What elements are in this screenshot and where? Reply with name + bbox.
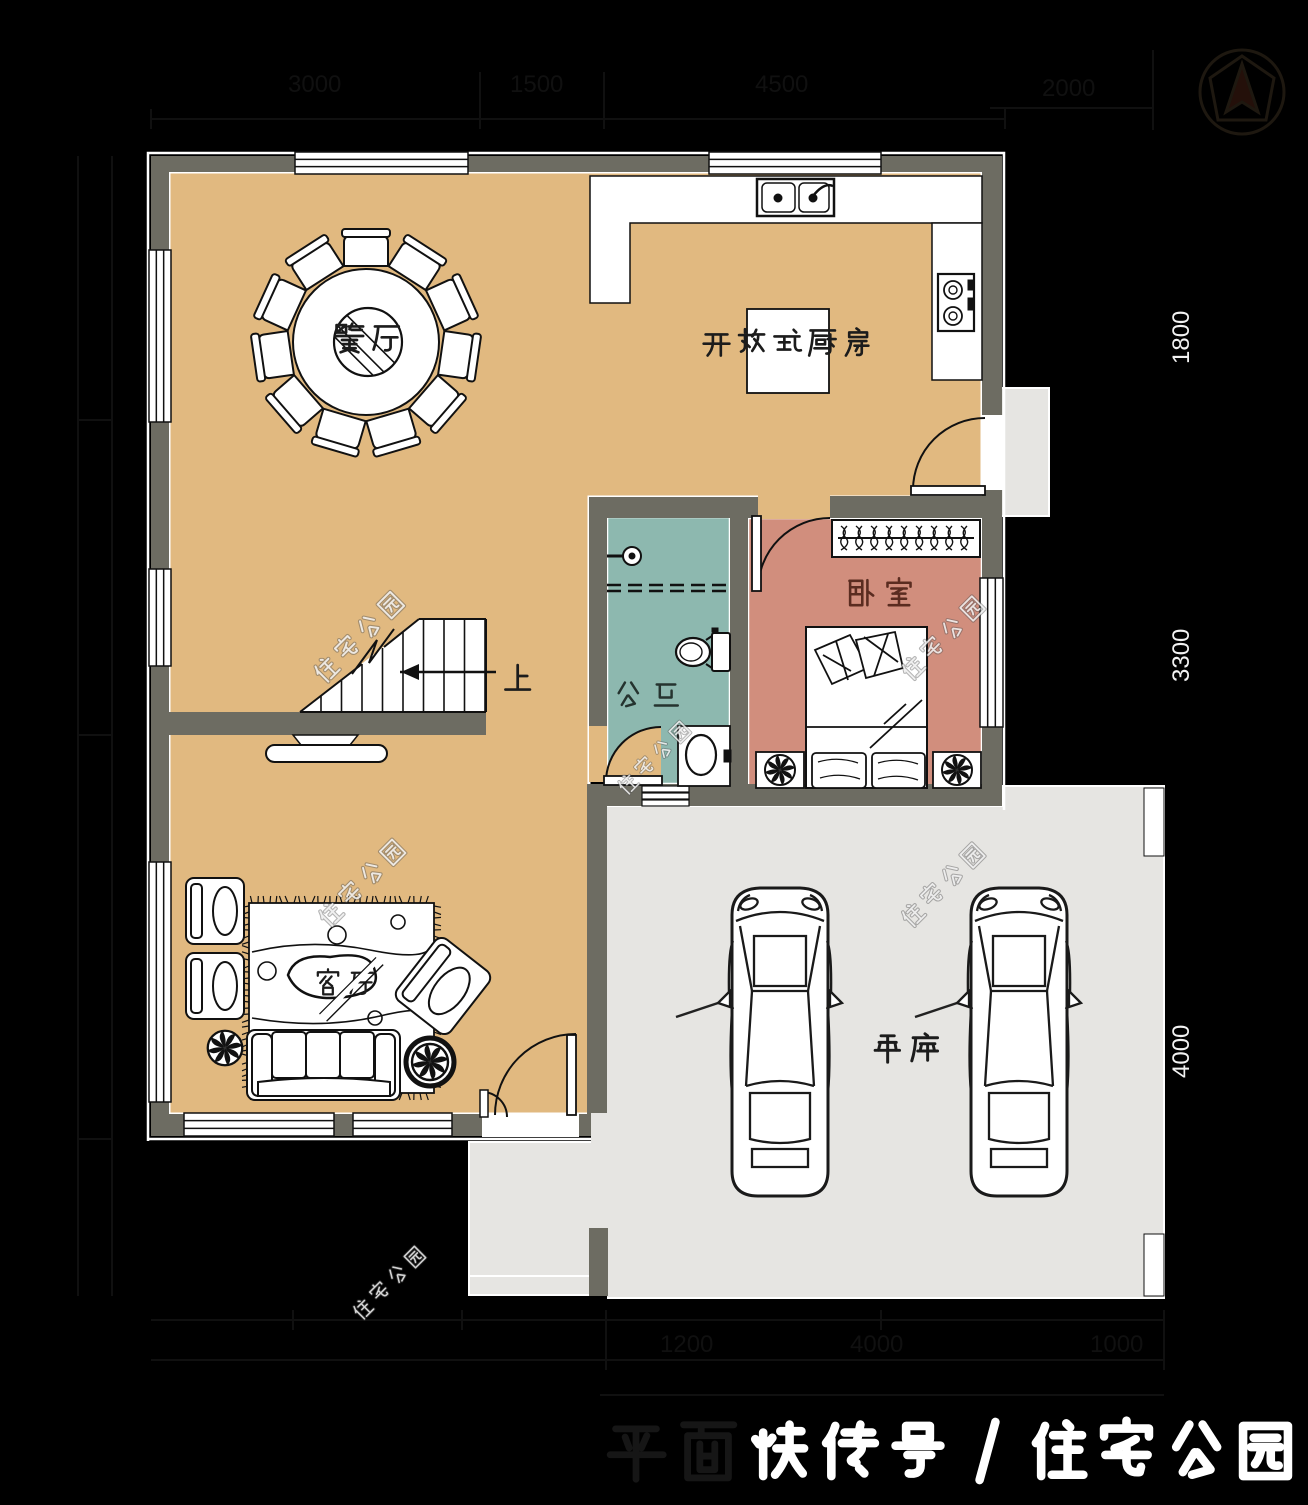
svg-text:1800: 1800 — [1168, 311, 1195, 364]
svg-text:2000: 2000 — [1042, 75, 1095, 102]
svg-text:4500: 4500 — [755, 71, 808, 98]
svg-text:1200: 1200 — [660, 1331, 713, 1358]
svg-text:1500: 1500 — [510, 71, 563, 98]
svg-text:3000: 3000 — [288, 71, 341, 98]
svg-text:1000: 1000 — [1090, 1331, 1143, 1358]
svg-text:4000: 4000 — [1168, 1025, 1195, 1078]
svg-text:3300: 3300 — [1168, 629, 1195, 682]
svg-text:4000: 4000 — [850, 1331, 903, 1358]
